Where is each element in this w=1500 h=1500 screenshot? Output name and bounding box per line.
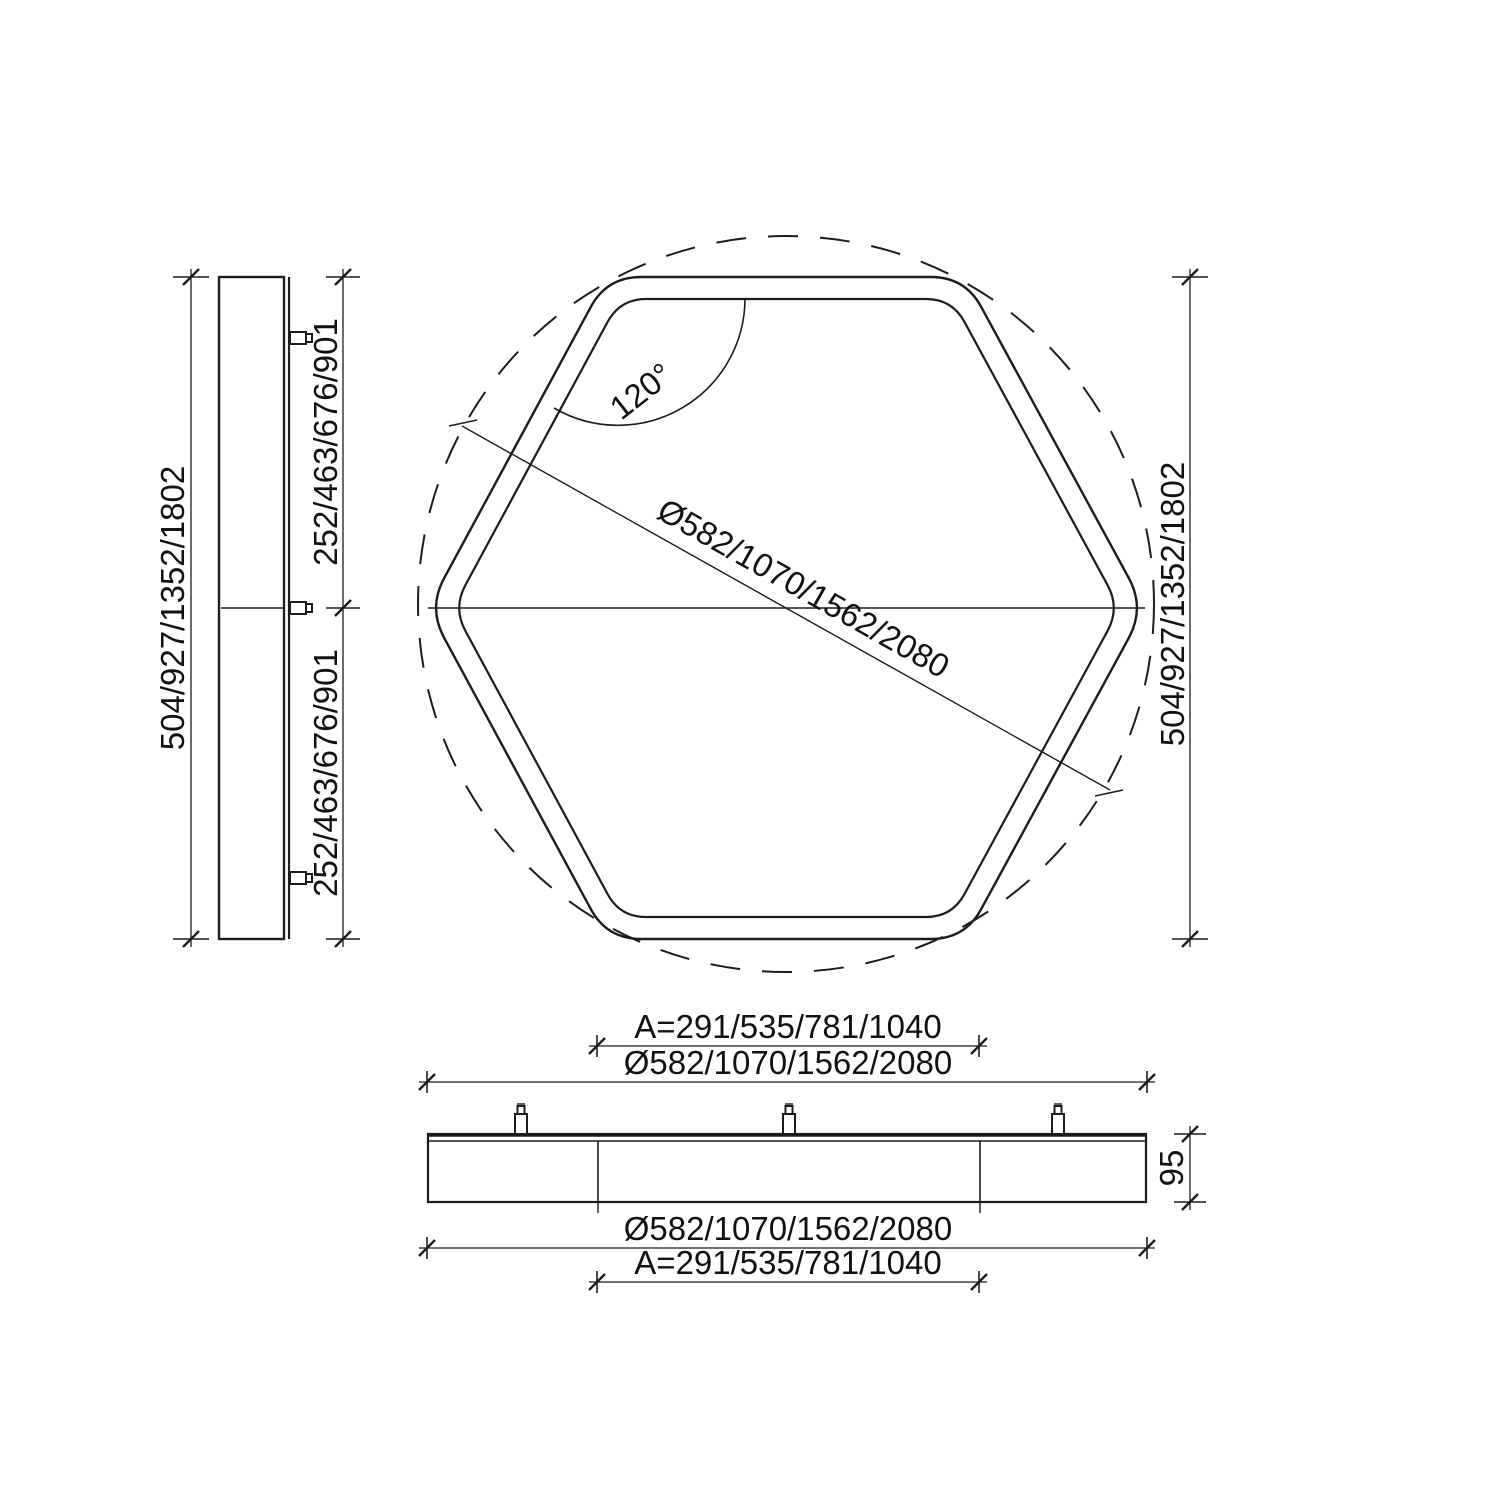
diameter-bottom-label: Ø582/1070/1562/2080	[624, 1210, 952, 1247]
top-view: Ø582/1070/1562/2080 120° 504/927/1352/18…	[418, 236, 1208, 972]
front-mount-stud-left	[515, 1104, 527, 1134]
hex-height-label: 504/927/1352/1802	[1154, 462, 1191, 746]
dimension-side-height: 504/927/1352/1802	[154, 269, 209, 947]
front-view: A=291/535/781/1040 Ø582/1070/1562/2080	[419, 1008, 1206, 1293]
a-top-label: A=291/535/781/1040	[634, 1008, 941, 1045]
angle-dimension: 120°	[554, 298, 745, 427]
diameter-top-label: Ø582/1070/1562/2080	[624, 1044, 952, 1081]
thickness-label: 95	[1153, 1150, 1190, 1187]
a-bottom-label: A=291/535/781/1040	[634, 1244, 941, 1281]
front-body-outline	[428, 1134, 1146, 1202]
side-mount-stud-middle	[290, 602, 312, 614]
side-half-height-bottom-label: 252/463/676/901	[307, 649, 344, 897]
drawing-page: 504/927/1352/1802 252/463/676/901 252/46…	[0, 0, 1500, 1500]
dimension-hex-height: 504/927/1352/1802	[1154, 269, 1208, 947]
diameter-label: Ø582/1070/1562/2080	[652, 491, 956, 685]
front-body	[428, 1104, 1146, 1213]
dimension-a-bottom: A=291/535/781/1040	[589, 1244, 987, 1293]
dimension-side-half-heights: 252/463/676/901 252/463/676/901	[307, 269, 360, 947]
dimension-diameter-top: Ø582/1070/1562/2080	[419, 1044, 1155, 1093]
front-mount-stud-center	[783, 1104, 795, 1134]
side-view: 504/927/1352/1802 252/463/676/901 252/46…	[154, 269, 360, 947]
front-mount-stud-right	[1052, 1104, 1064, 1134]
circumscribed-circle-dashed	[418, 236, 1154, 972]
drawing-canvas: 504/927/1352/1802 252/463/676/901 252/46…	[0, 0, 1500, 1500]
side-half-height-top-label: 252/463/676/901	[307, 318, 344, 566]
dimension-thickness: 95	[1153, 1126, 1206, 1210]
side-height-label: 504/927/1352/1802	[154, 466, 191, 750]
